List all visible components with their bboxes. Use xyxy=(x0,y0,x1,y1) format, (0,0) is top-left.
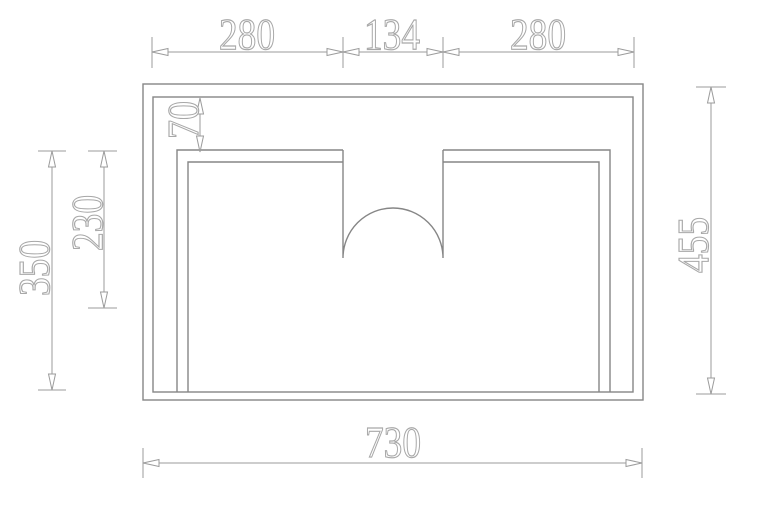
dim-arrowhead xyxy=(343,49,359,56)
dim-arrowhead xyxy=(626,460,642,467)
outer-frame xyxy=(143,84,643,400)
dim-arrowhead xyxy=(327,49,343,56)
dim-arrowhead xyxy=(101,292,108,308)
dim-arrowhead xyxy=(708,378,715,394)
outer-frame-inner-rect xyxy=(153,97,633,392)
dim-arrowhead xyxy=(618,49,634,56)
dim-left-outer: 350 xyxy=(10,151,66,390)
panel-edge-left-inner xyxy=(188,162,343,392)
dim-arrowhead xyxy=(101,151,108,167)
dim-arrowhead xyxy=(49,151,56,167)
panel-edge-right-outer xyxy=(443,150,610,392)
dim-bottom-width: 730 xyxy=(143,418,642,478)
recessed-panel xyxy=(177,150,610,392)
dim-arrowhead xyxy=(152,49,168,56)
dim-label-top-right: 280 xyxy=(510,10,566,59)
dim-top-widths: 280 134 280 xyxy=(152,10,634,68)
dim-label-bottom-width: 730 xyxy=(365,418,421,467)
basin-cutout xyxy=(343,150,443,258)
dim-arrowhead xyxy=(708,87,715,103)
dim-label-top-left: 280 xyxy=(219,10,275,59)
dim-left-inner: 230 xyxy=(63,151,117,308)
dim-arrowhead xyxy=(49,374,56,390)
panel-edge-right-inner xyxy=(443,162,599,392)
dim-label-right-height: 455 xyxy=(669,217,718,273)
drawing-canvas: 280 134 280 350 230 70 xyxy=(0,0,759,516)
outer-frame-outer-rect xyxy=(143,84,643,400)
dim-label-left-inner: 230 xyxy=(63,195,112,251)
dim-label-offset: 70 xyxy=(159,101,208,139)
dim-offset: 70 xyxy=(159,98,208,152)
dim-arrowhead xyxy=(143,460,159,467)
panel-edge-left-outer xyxy=(177,150,343,392)
dim-arrowhead xyxy=(427,49,443,56)
dim-label-top-center: 134 xyxy=(364,10,420,59)
technical-drawing: 280 134 280 350 230 70 xyxy=(0,0,759,516)
dim-right-height: 455 xyxy=(669,87,726,394)
dim-label-left-outer: 350 xyxy=(10,240,59,296)
dim-arrowhead xyxy=(443,49,459,56)
